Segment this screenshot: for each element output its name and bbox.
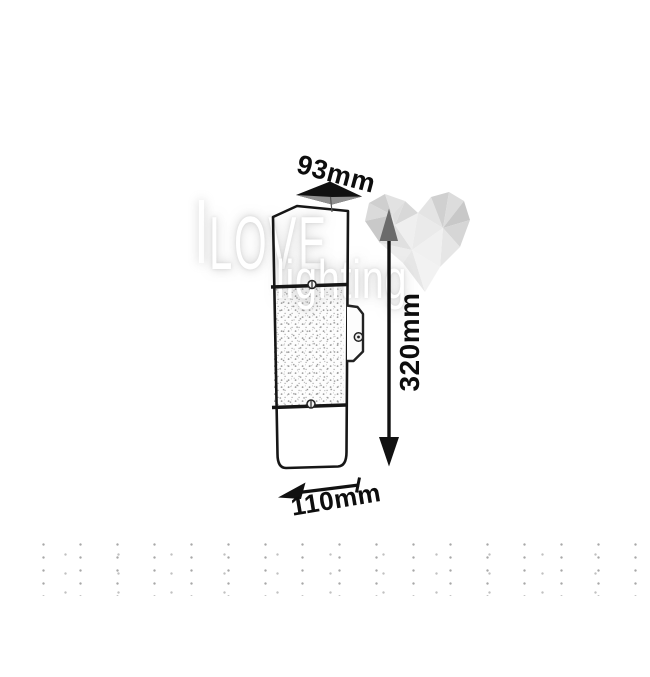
screw-top xyxy=(308,281,316,289)
screw-bracket-slot xyxy=(357,336,360,339)
dimension-label-height: 320mm xyxy=(396,287,426,397)
mounting-bracket xyxy=(347,306,363,362)
product-dimension-diagram: LOVE lighting xyxy=(0,0,650,677)
lamp-line-art xyxy=(0,0,650,677)
screw-bottom xyxy=(307,400,315,408)
wall-lamp-outline xyxy=(273,206,348,468)
